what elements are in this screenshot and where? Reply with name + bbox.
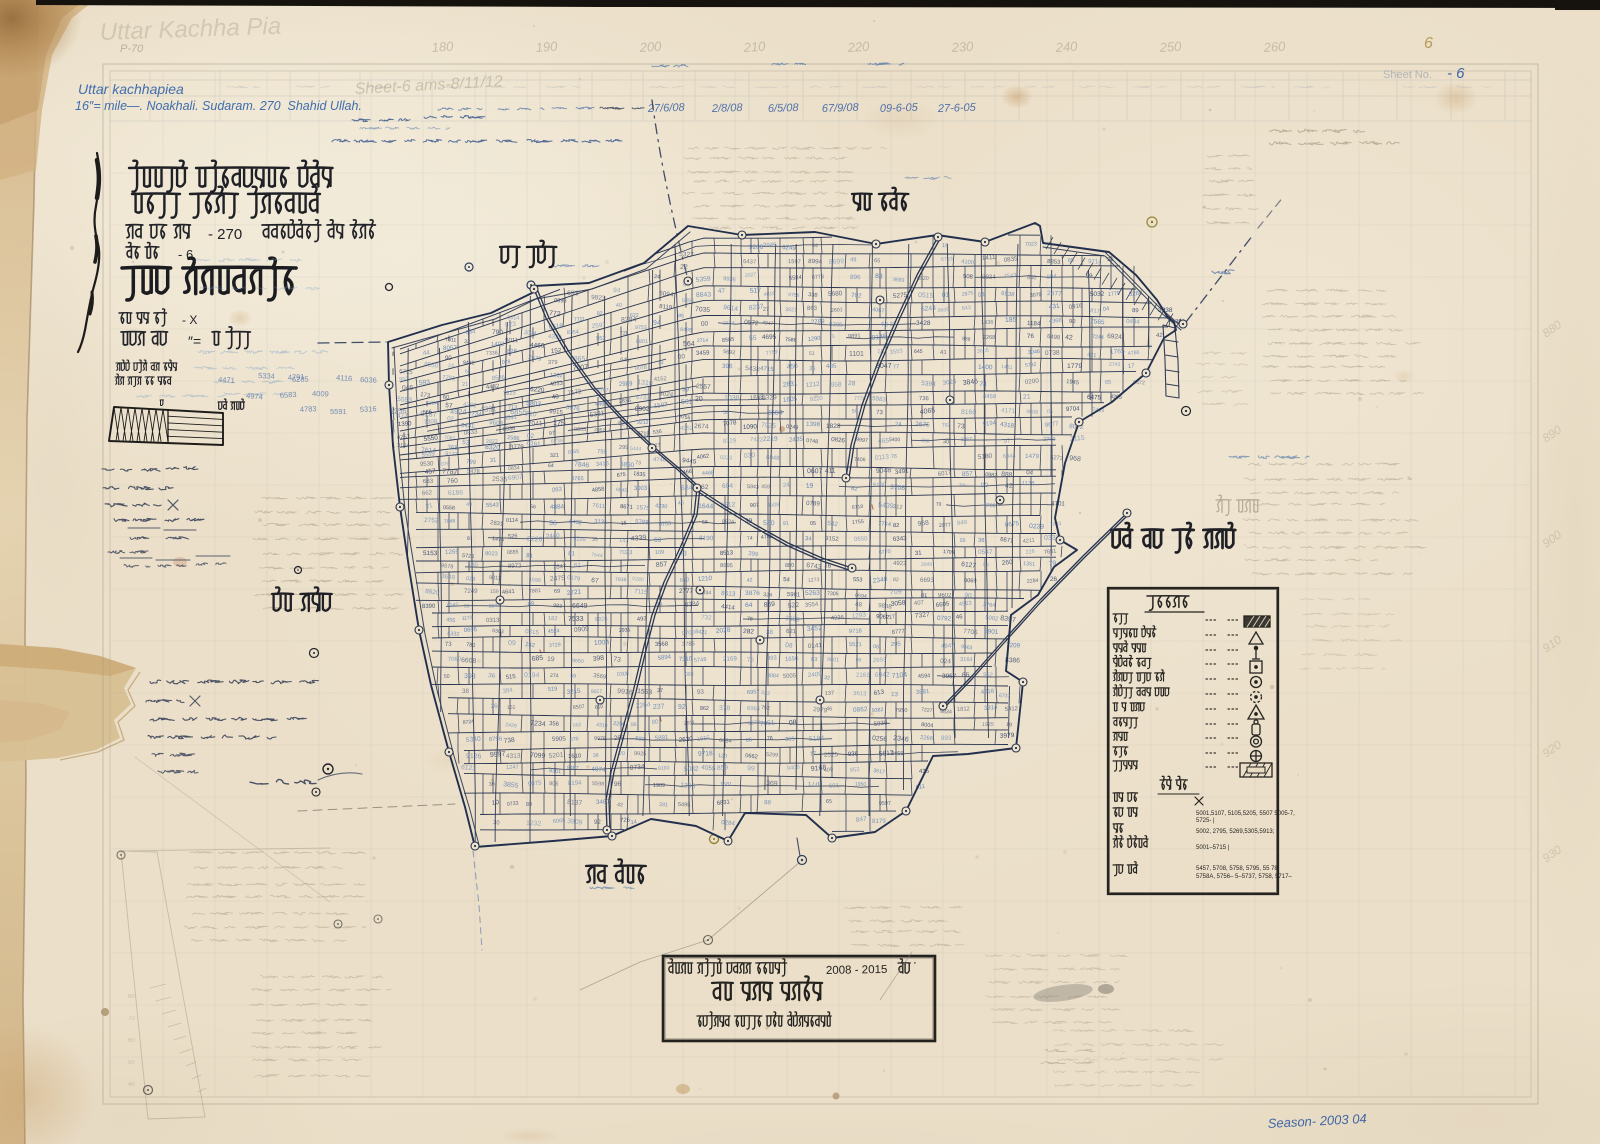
svg-text:38: 38 (462, 688, 470, 695)
svg-text:7234: 7234 (530, 720, 546, 728)
svg-text:6924: 6924 (1107, 333, 1122, 341)
svg-text:59: 59 (682, 387, 690, 394)
svg-text:83: 83 (811, 657, 817, 663)
svg-text:02: 02 (527, 433, 535, 440)
svg-text:65: 65 (1068, 258, 1074, 264)
svg-text:7023: 7023 (619, 550, 633, 556)
svg-text:6: 6 (1424, 35, 1433, 52)
svg-text:0313: 0313 (486, 617, 500, 624)
svg-text:862: 862 (700, 706, 709, 712)
svg-text:790: 790 (492, 329, 503, 336)
svg-text:70: 70 (128, 1016, 135, 1022)
svg-text:295: 295 (891, 642, 902, 648)
svg-text:- 270: - 270 (208, 226, 242, 243)
svg-text:5553: 5553 (397, 396, 413, 404)
svg-text:8194: 8194 (568, 780, 582, 787)
svg-text:5334: 5334 (258, 371, 275, 381)
svg-text:968: 968 (1069, 455, 1081, 463)
svg-text:1212: 1212 (806, 381, 821, 389)
svg-text:0594: 0594 (855, 593, 867, 600)
svg-text:8924: 8924 (722, 519, 734, 525)
svg-text:2752: 2752 (424, 517, 439, 525)
svg-text:7227: 7227 (921, 707, 933, 714)
svg-text:1411: 1411 (982, 254, 997, 262)
svg-text:40: 40 (551, 393, 559, 401)
svg-text:89: 89 (526, 802, 532, 808)
svg-text:0607: 0607 (807, 468, 823, 475)
svg-text:61: 61 (574, 563, 582, 569)
svg-text:1269: 1269 (445, 548, 460, 556)
svg-text:2557: 2557 (696, 383, 711, 391)
svg-text:0078: 0078 (635, 365, 648, 372)
svg-text:7950: 7950 (895, 708, 908, 714)
svg-text:60: 60 (128, 1038, 135, 1044)
svg-text:63: 63 (654, 537, 662, 544)
svg-text:62: 62 (701, 484, 709, 491)
svg-text:4922: 4922 (893, 560, 907, 567)
svg-text:8200: 8200 (829, 322, 843, 329)
svg-text:610: 610 (594, 704, 603, 711)
svg-text:00: 00 (701, 321, 709, 328)
svg-text:1581: 1581 (720, 782, 732, 788)
svg-text:772: 772 (549, 310, 561, 318)
svg-text:0893: 0893 (554, 298, 567, 305)
svg-text:1563: 1563 (637, 688, 653, 696)
svg-text:3764: 3764 (983, 602, 996, 609)
svg-text:4466: 4466 (530, 342, 545, 350)
svg-text:9753: 9753 (635, 325, 647, 331)
svg-text:5439: 5439 (878, 502, 894, 510)
svg-text:Uttar kachhapiea: Uttar kachhapiea (78, 81, 184, 97)
svg-text:93: 93 (697, 688, 705, 696)
svg-text:2525: 2525 (824, 751, 839, 759)
svg-text:0982: 0982 (985, 472, 997, 479)
svg-text:5263: 5263 (805, 590, 820, 597)
svg-text:8390: 8390 (422, 604, 436, 610)
svg-text:732: 732 (701, 614, 712, 622)
svg-text:680: 680 (468, 562, 479, 569)
svg-text:409: 409 (824, 767, 834, 774)
svg-text:82: 82 (893, 523, 899, 529)
svg-text:8994: 8994 (808, 258, 823, 266)
svg-text:760: 760 (447, 478, 458, 485)
svg-text:299: 299 (619, 445, 628, 451)
svg-text:5725- |: 5725- | (1196, 818, 1215, 824)
svg-text:799: 799 (466, 459, 477, 466)
svg-text:65: 65 (826, 799, 832, 805)
svg-text:69: 69 (554, 589, 561, 595)
svg-text:2536: 2536 (492, 476, 508, 484)
svg-text:8901: 8901 (984, 628, 999, 636)
svg-text:02: 02 (447, 416, 454, 423)
svg-text:9382: 9382 (872, 707, 884, 714)
svg-text:5584: 5584 (789, 275, 803, 282)
svg-text:08: 08 (785, 642, 793, 650)
svg-text:57: 57 (445, 402, 454, 410)
svg-text:863: 863 (807, 306, 818, 312)
svg-text:- 6: - 6 (1447, 65, 1465, 82)
svg-text:82: 82 (893, 577, 899, 583)
svg-text:260: 260 (1262, 38, 1286, 55)
svg-text:0834: 0834 (508, 465, 520, 472)
svg-text:5082: 5082 (684, 766, 699, 773)
svg-text:0194: 0194 (524, 672, 540, 679)
svg-text:9700: 9700 (682, 630, 695, 637)
svg-text:24: 24 (448, 363, 454, 369)
svg-text:536: 536 (653, 429, 663, 436)
svg-text:693: 693 (567, 290, 579, 297)
svg-text:5180: 5180 (978, 453, 993, 461)
svg-text:5943: 5943 (747, 484, 759, 491)
svg-text:137: 137 (825, 690, 835, 697)
svg-text:0902: 0902 (635, 406, 650, 413)
svg-text:905: 905 (549, 781, 559, 788)
svg-text:8421: 8421 (695, 629, 708, 636)
svg-text:4332: 4332 (447, 631, 460, 638)
svg-text:5680: 5680 (828, 290, 843, 298)
svg-text:4468: 4468 (702, 470, 714, 477)
svg-text:566: 566 (423, 409, 432, 416)
svg-text:9126: 9126 (466, 753, 482, 760)
svg-text:993: 993 (767, 655, 778, 662)
svg-text:782: 782 (942, 422, 951, 429)
svg-text:1202: 1202 (550, 373, 563, 379)
svg-text:01: 01 (921, 593, 927, 599)
svg-text:40: 40 (616, 303, 623, 309)
svg-text:7923: 7923 (503, 391, 516, 397)
svg-text:54: 54 (783, 577, 791, 584)
svg-text:59: 59 (1086, 273, 1094, 279)
svg-text:24: 24 (654, 274, 660, 280)
svg-text:526: 526 (508, 534, 518, 540)
svg-text:5905: 5905 (552, 736, 567, 743)
svg-text:0226: 0226 (527, 536, 543, 544)
svg-text:9997: 9997 (490, 751, 506, 759)
svg-text:1451: 1451 (1001, 364, 1013, 371)
svg-text:8513: 8513 (720, 550, 734, 557)
svg-text:1138: 1138 (1022, 481, 1034, 487)
svg-text:7011: 7011 (445, 337, 457, 344)
svg-text:522: 522 (787, 602, 799, 610)
svg-text:05: 05 (810, 521, 816, 527)
svg-text:0789: 0789 (806, 500, 821, 507)
svg-text:0284: 0284 (721, 819, 736, 827)
svg-text:532: 532 (761, 690, 771, 697)
svg-text:06: 06 (873, 644, 880, 651)
svg-text:9925: 9925 (634, 751, 646, 757)
svg-text:90: 90 (445, 355, 452, 362)
svg-text:7338: 7338 (486, 350, 498, 357)
svg-text:4947: 4947 (941, 642, 956, 650)
svg-text:1210: 1210 (698, 575, 713, 583)
svg-text:4290: 4290 (655, 503, 668, 510)
svg-text:73: 73 (445, 642, 453, 648)
svg-text:64: 64 (745, 602, 753, 609)
svg-text:3708: 3708 (890, 484, 906, 492)
svg-text:8119: 8119 (659, 303, 673, 311)
svg-text:752: 752 (761, 705, 770, 712)
svg-text:6718: 6718 (852, 504, 864, 511)
svg-text:94: 94 (613, 287, 621, 295)
svg-text:9017: 9017 (591, 689, 602, 695)
svg-text:9635: 9635 (938, 307, 950, 314)
svg-text:365: 365 (785, 737, 795, 743)
svg-text:17: 17 (888, 614, 895, 621)
svg-text:691: 691 (829, 782, 840, 790)
svg-text:00: 00 (677, 353, 685, 361)
svg-text:66: 66 (962, 672, 970, 679)
svg-text:9011: 9011 (505, 337, 519, 344)
svg-text:0765: 0765 (571, 476, 584, 482)
svg-text:50: 50 (128, 1060, 135, 1066)
svg-text:6948: 6948 (766, 455, 780, 462)
svg-text:65: 65 (1105, 380, 1111, 386)
svg-text:431: 431 (1048, 303, 1060, 311)
svg-text:6285: 6285 (292, 374, 309, 384)
svg-text:88: 88 (875, 273, 883, 280)
svg-text:175: 175 (553, 420, 565, 428)
svg-text:09: 09 (508, 640, 516, 647)
svg-text:817: 817 (1090, 308, 1100, 315)
svg-text:9206: 9206 (749, 244, 764, 251)
svg-text:7244: 7244 (1092, 334, 1104, 341)
svg-text:907: 907 (750, 503, 759, 509)
svg-text:92: 92 (678, 704, 686, 711)
svg-text:8190: 8190 (699, 535, 714, 542)
svg-text:9593: 9593 (893, 277, 905, 284)
svg-text:9718: 9718 (849, 628, 862, 635)
svg-text:58: 58 (851, 408, 858, 415)
svg-text:5153: 5153 (423, 550, 438, 557)
svg-text:9601: 9601 (827, 657, 839, 663)
svg-text:9823: 9823 (591, 294, 606, 302)
svg-text:24: 24 (658, 360, 664, 367)
svg-text:5725: 5725 (462, 553, 474, 560)
svg-text:85: 85 (678, 313, 684, 320)
svg-text:7711: 7711 (574, 316, 585, 323)
svg-text:4459: 4459 (983, 394, 996, 400)
svg-text:3003: 3003 (634, 486, 648, 492)
svg-text:3415: 3415 (596, 461, 610, 468)
svg-text:6715: 6715 (399, 368, 414, 376)
svg-text:7099: 7099 (530, 752, 546, 760)
svg-text:00: 00 (981, 482, 989, 489)
svg-text:2268: 2268 (983, 335, 995, 341)
svg-text:67/9/08: 67/9/08 (822, 102, 860, 115)
svg-text:2409: 2409 (808, 671, 823, 679)
svg-text:8160: 8160 (961, 409, 976, 416)
svg-text:5981: 5981 (787, 592, 800, 598)
svg-text:3979: 3979 (1000, 732, 1015, 740)
svg-text:3164: 3164 (960, 657, 973, 663)
svg-text:3914: 3914 (984, 704, 999, 712)
svg-text:8487: 8487 (567, 765, 579, 772)
svg-text:4783: 4783 (300, 404, 317, 414)
svg-text:13: 13 (891, 691, 899, 698)
svg-text:8301: 8301 (549, 768, 562, 775)
svg-text:9997: 9997 (856, 437, 868, 444)
svg-text:82: 82 (597, 311, 603, 317)
svg-text:5891: 5891 (655, 734, 670, 742)
svg-text:378: 378 (719, 705, 731, 712)
svg-text:2977: 2977 (939, 522, 951, 529)
svg-text:2161: 2161 (856, 672, 870, 679)
svg-text:4366: 4366 (1049, 318, 1062, 325)
svg-text:6437: 6437 (743, 259, 756, 266)
svg-text:42: 42 (1005, 483, 1013, 490)
svg-text:662: 662 (422, 489, 433, 497)
svg-text:16″= mile—. Noakhali. Sudaram.: 16″= mile—. Noakhali. Sudaram. 270 Shahi… (75, 99, 362, 113)
svg-text:2945: 2945 (763, 242, 777, 249)
svg-text:10: 10 (491, 799, 500, 807)
svg-text:9975: 9975 (594, 736, 606, 742)
svg-text:8695: 8695 (720, 563, 733, 569)
svg-text:8004: 8004 (921, 722, 934, 729)
svg-text:896: 896 (850, 274, 861, 281)
svg-text:4116: 4116 (336, 373, 353, 383)
svg-text:8137: 8137 (567, 799, 583, 807)
svg-text:5598: 5598 (592, 781, 605, 788)
svg-text:622: 622 (630, 313, 639, 319)
svg-text:9048: 9048 (876, 467, 892, 475)
svg-text:2008 - 2015: 2008 - 2015 (826, 964, 888, 977)
svg-text:9915: 9915 (549, 408, 564, 416)
svg-text:4816: 4816 (764, 291, 776, 298)
svg-text:936: 936 (848, 750, 859, 758)
svg-text:542: 542 (827, 520, 839, 528)
svg-text:80: 80 (128, 994, 135, 1000)
svg-text:90: 90 (964, 592, 973, 600)
svg-text:7104: 7104 (892, 672, 908, 680)
svg-text:73: 73 (635, 460, 641, 466)
svg-text:76: 76 (1027, 333, 1035, 340)
svg-text:5316: 5316 (360, 404, 377, 414)
svg-text:6608: 6608 (461, 657, 477, 665)
svg-text:64: 64 (465, 368, 471, 375)
svg-text:1836: 1836 (981, 320, 994, 326)
svg-text:8613: 8613 (721, 590, 736, 598)
svg-text:7565: 7565 (1090, 318, 1105, 326)
svg-text:8057: 8057 (443, 345, 457, 352)
svg-text:508: 508 (963, 274, 974, 281)
svg-text:0308: 0308 (617, 671, 629, 678)
svg-text:1599: 1599 (529, 577, 541, 584)
svg-text:40: 40 (128, 1082, 135, 1088)
svg-text:613: 613 (873, 689, 885, 697)
svg-text:5299: 5299 (766, 752, 778, 759)
svg-text:2475: 2475 (550, 575, 566, 583)
svg-text:4152: 4152 (654, 376, 667, 383)
svg-text:3881: 3881 (916, 688, 931, 696)
svg-text:736: 736 (919, 396, 929, 402)
svg-text:3957: 3957 (942, 673, 957, 680)
svg-text:49: 49 (850, 257, 857, 264)
svg-text:99: 99 (856, 657, 863, 664)
svg-text:210: 210 (742, 38, 766, 55)
svg-text:063: 063 (573, 722, 582, 729)
svg-text:4715: 4715 (760, 365, 775, 373)
svg-text:44: 44 (423, 349, 431, 357)
svg-text:60: 60 (443, 395, 450, 401)
svg-text:759: 759 (597, 449, 607, 456)
svg-text:5692: 5692 (723, 349, 736, 356)
svg-text:1925: 1925 (982, 722, 994, 728)
svg-text:9152: 9152 (825, 535, 840, 543)
svg-text:237: 237 (653, 703, 665, 711)
svg-text:859: 859 (717, 764, 729, 772)
svg-text:6737: 6737 (999, 693, 1011, 699)
svg-text:684: 684 (681, 485, 693, 492)
svg-text:35: 35 (592, 537, 598, 543)
svg-text:1812: 1812 (957, 706, 970, 713)
svg-text:65: 65 (874, 258, 881, 264)
svg-text:8756: 8756 (489, 737, 503, 743)
svg-text:5444: 5444 (630, 446, 642, 452)
svg-text:7925: 7925 (761, 422, 777, 430)
svg-text:76: 76 (767, 736, 773, 742)
svg-text:0826: 0826 (831, 436, 846, 444)
svg-text:3785: 3785 (682, 641, 695, 648)
svg-text:04: 04 (977, 291, 985, 299)
svg-text:0547: 0547 (978, 549, 993, 556)
svg-text:338: 338 (808, 292, 818, 299)
svg-text:67: 67 (591, 577, 600, 585)
svg-text:36: 36 (489, 781, 496, 788)
svg-text:06: 06 (746, 737, 753, 744)
svg-text:0515: 0515 (918, 292, 934, 300)
svg-text:78: 78 (747, 616, 753, 622)
svg-text:8724: 8724 (463, 719, 475, 726)
svg-text:6753: 6753 (659, 521, 672, 528)
svg-text:076: 076 (441, 461, 450, 468)
svg-text:75: 75 (746, 656, 754, 664)
svg-text:828: 828 (507, 349, 518, 355)
svg-text:2674: 2674 (694, 423, 709, 431)
svg-text:702: 702 (851, 292, 862, 300)
svg-text:P-70: P-70 (120, 43, 144, 55)
svg-text:Sheet No.: Sheet No. (1383, 69, 1432, 81)
svg-text:5792: 5792 (1025, 362, 1037, 369)
svg-text:6186: 6186 (448, 489, 464, 497)
svg-text:962: 962 (983, 672, 993, 679)
svg-text:74: 74 (979, 381, 987, 389)
svg-text:66: 66 (702, 520, 708, 526)
svg-text:80: 80 (652, 719, 659, 726)
svg-text:1610: 1610 (568, 754, 582, 760)
svg-text:42: 42 (617, 802, 623, 809)
svg-text:2989: 2989 (619, 381, 633, 388)
svg-text:3131: 3131 (594, 519, 608, 526)
svg-text:73: 73 (876, 409, 884, 416)
svg-text:96: 96 (614, 781, 622, 788)
svg-text:3568: 3568 (655, 642, 669, 648)
svg-text:7041: 7041 (528, 420, 543, 428)
svg-text:8354: 8354 (567, 329, 579, 336)
svg-text:4313: 4313 (506, 753, 521, 760)
svg-text:1828: 1828 (826, 423, 841, 430)
svg-text:983: 983 (553, 603, 562, 610)
svg-text:97: 97 (549, 431, 556, 437)
svg-text:0695: 0695 (464, 627, 478, 634)
svg-text:82: 82 (851, 486, 858, 493)
svg-text:6770: 6770 (879, 549, 891, 556)
svg-text:7115: 7115 (634, 588, 648, 596)
svg-text:8934: 8934 (982, 274, 996, 281)
svg-text:28: 28 (848, 380, 856, 388)
svg-text:9865: 9865 (574, 427, 586, 433)
svg-text:81: 81 (467, 536, 473, 542)
svg-text:31: 31 (490, 458, 497, 464)
